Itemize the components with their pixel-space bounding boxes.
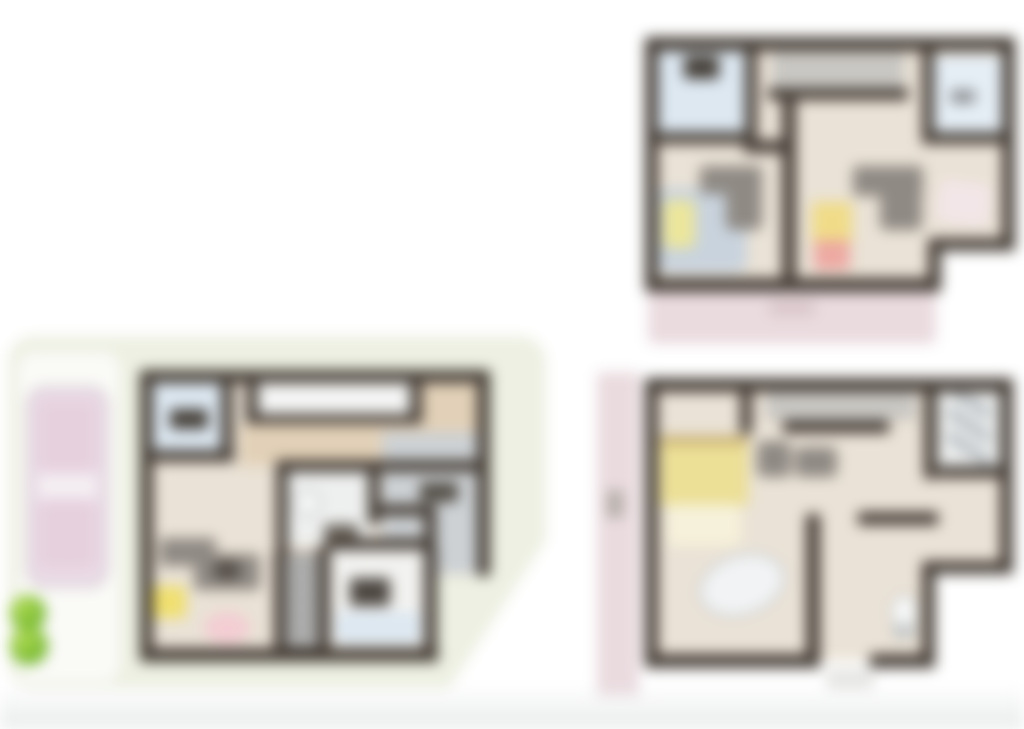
wall — [256, 414, 412, 424]
porch-mark — [607, 490, 623, 518]
wall — [922, 132, 1015, 144]
desk-chair — [726, 188, 762, 230]
armchair — [757, 441, 791, 477]
dining-table — [204, 612, 250, 644]
wall — [930, 561, 1013, 574]
porch-strip — [597, 372, 639, 696]
toilet — [296, 490, 320, 516]
wall — [858, 512, 938, 525]
wall — [424, 545, 437, 655]
wall — [1002, 37, 1015, 251]
bed-pillow — [663, 200, 695, 248]
corner-shelf — [935, 179, 992, 228]
wall — [330, 538, 426, 550]
bottom-shadow — [0, 684, 1024, 729]
toilet-tank — [893, 624, 915, 638]
bed — [660, 444, 748, 506]
porch-label-smudge — [768, 300, 816, 316]
wall — [782, 88, 796, 280]
wall — [645, 278, 937, 292]
wall — [274, 552, 286, 662]
wall — [745, 44, 757, 144]
bed-pillow — [667, 504, 741, 546]
wall — [645, 378, 658, 668]
wall — [928, 238, 941, 292]
wall — [652, 132, 756, 144]
wall — [922, 50, 934, 144]
notch-mask — [935, 574, 1024, 700]
porch-strip — [648, 290, 936, 344]
wall — [276, 460, 288, 558]
wall — [140, 648, 438, 662]
balcony — [772, 52, 904, 90]
genkan-floor — [336, 612, 420, 644]
wall — [378, 504, 426, 516]
room-label-chip — [951, 90, 975, 103]
wall — [140, 370, 153, 662]
car-hood — [38, 500, 97, 570]
wall — [645, 37, 1015, 51]
dresser — [812, 202, 852, 244]
wall — [744, 140, 796, 153]
wall — [938, 466, 1004, 478]
kitchen-yellow-mat — [152, 586, 186, 618]
wall — [645, 378, 1013, 392]
balcony — [766, 390, 916, 420]
wall — [924, 383, 937, 479]
wall — [140, 370, 490, 383]
bush-icon — [10, 627, 48, 665]
car-roof — [38, 400, 97, 472]
notch-mask — [941, 251, 1024, 351]
wall — [740, 384, 752, 434]
bush-icon — [10, 595, 46, 631]
stairs — [286, 554, 320, 648]
armchair — [795, 447, 837, 477]
wall — [477, 370, 490, 576]
room-label-chip — [420, 482, 458, 502]
wall — [221, 378, 233, 456]
blurred-scene — [0, 0, 1024, 729]
dresser — [814, 240, 850, 270]
room-label-chip — [684, 56, 719, 79]
wall — [806, 514, 820, 668]
room-label-chip — [170, 409, 208, 429]
desk-chair — [880, 190, 922, 230]
wall — [922, 561, 935, 668]
floorplan-sheet — [0, 0, 1024, 729]
wall — [318, 546, 330, 650]
wall — [928, 238, 1015, 251]
car-windshield — [38, 474, 97, 498]
wall — [783, 420, 889, 433]
kitchen-appliance — [214, 560, 240, 580]
wall — [645, 37, 658, 292]
room-label-chip — [350, 578, 390, 606]
wall — [645, 654, 820, 668]
wall — [150, 450, 234, 462]
wall — [410, 378, 422, 424]
